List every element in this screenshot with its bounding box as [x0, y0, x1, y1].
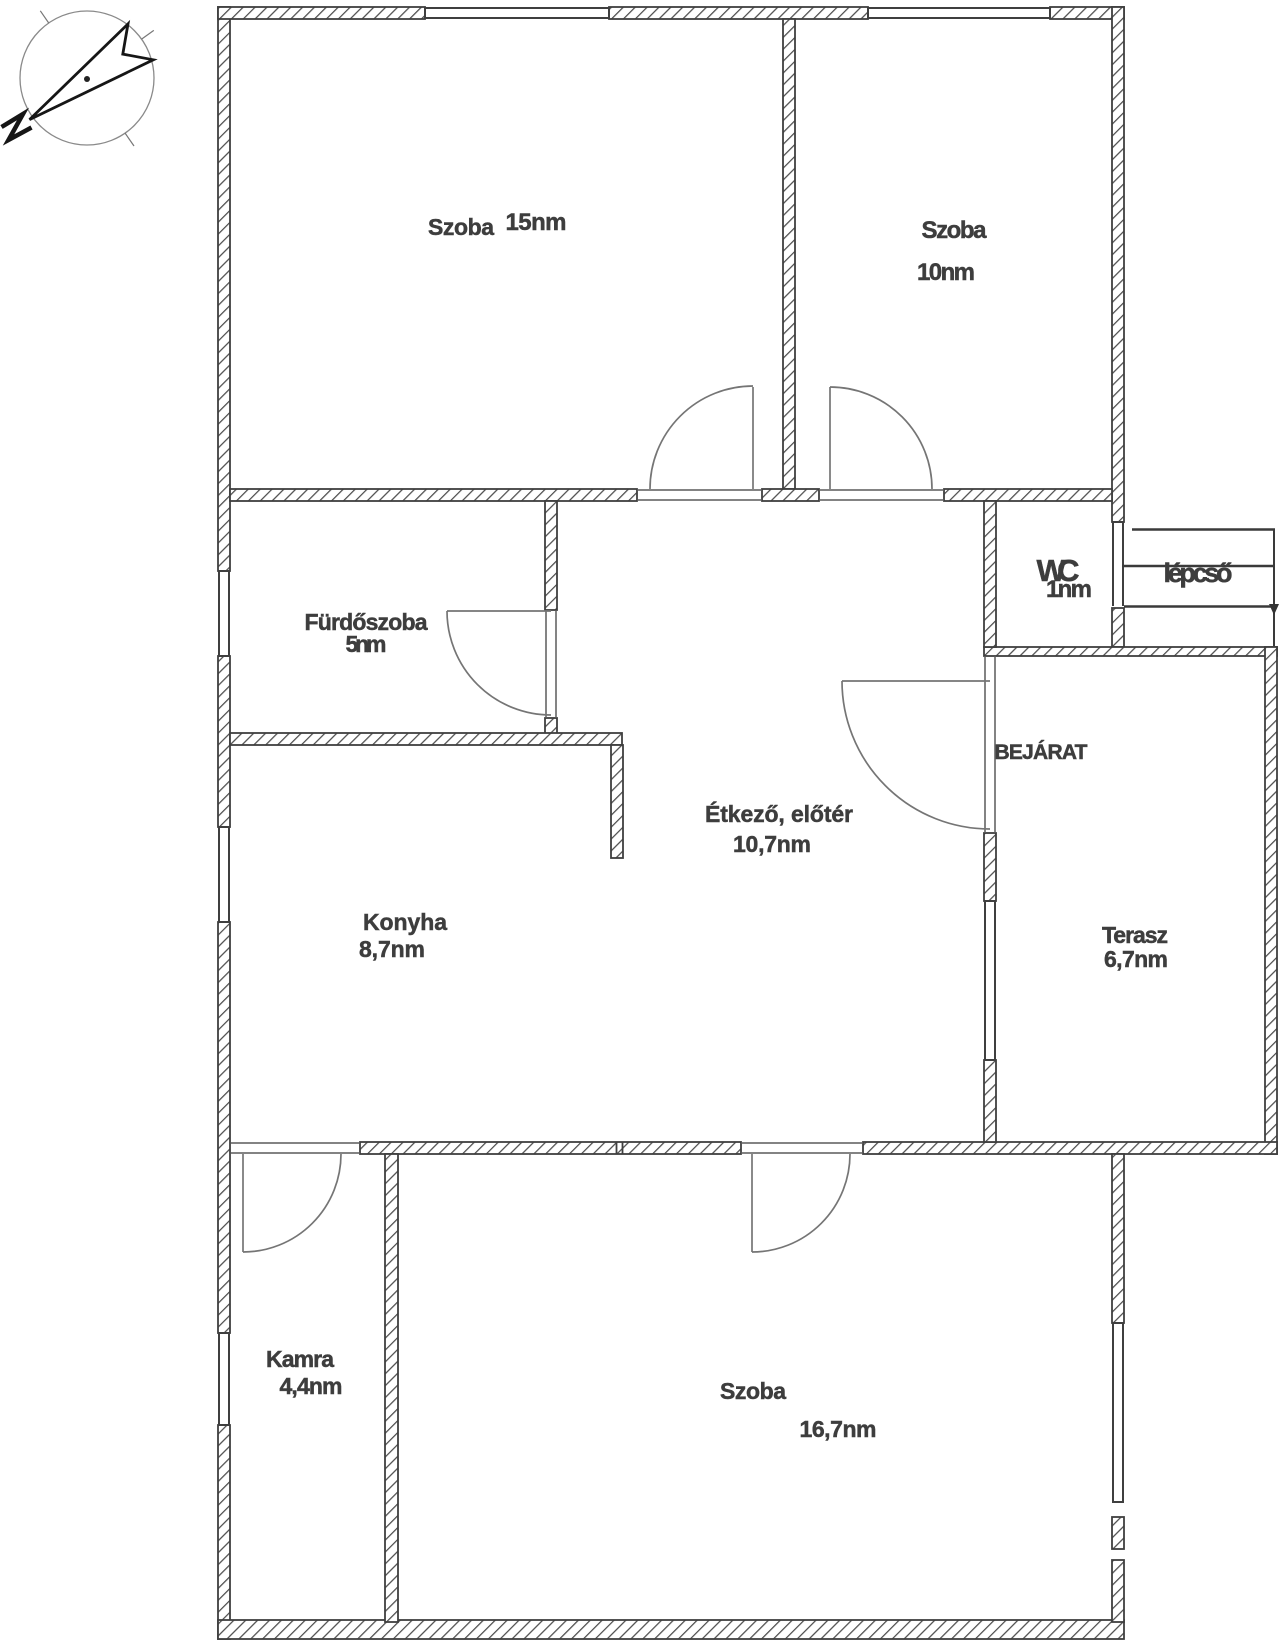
svg-text:BEJÁRAT: BEJÁRAT — [995, 741, 1088, 764]
svg-text:Terasz: Terasz — [1102, 922, 1168, 948]
svg-text:Szoba: Szoba — [922, 217, 988, 244]
svg-text:15nm: 15nm — [506, 209, 567, 236]
svg-text:6,7nm: 6,7nm — [1104, 946, 1168, 972]
svg-text:16,7nm: 16,7nm — [800, 1416, 877, 1442]
svg-text:1nm: 1nm — [1046, 576, 1092, 603]
svg-text:Kamra: Kamra — [266, 1346, 334, 1372]
svg-text:Étkező, előtér: Étkező, előtér — [705, 800, 853, 827]
svg-text:4,4nm: 4,4nm — [280, 1373, 343, 1399]
svg-text:Szoba: Szoba — [428, 214, 494, 240]
svg-text:10nm: 10nm — [917, 259, 975, 286]
svg-text:5nm: 5nm — [346, 631, 387, 657]
svg-text:Szoba: Szoba — [720, 1378, 786, 1404]
svg-text:Konyha: Konyha — [363, 909, 447, 935]
svg-text:10,7nm: 10,7nm — [733, 831, 811, 857]
svg-text:lépcső: lépcső — [1164, 558, 1233, 588]
svg-text:8,7nm: 8,7nm — [359, 936, 425, 962]
